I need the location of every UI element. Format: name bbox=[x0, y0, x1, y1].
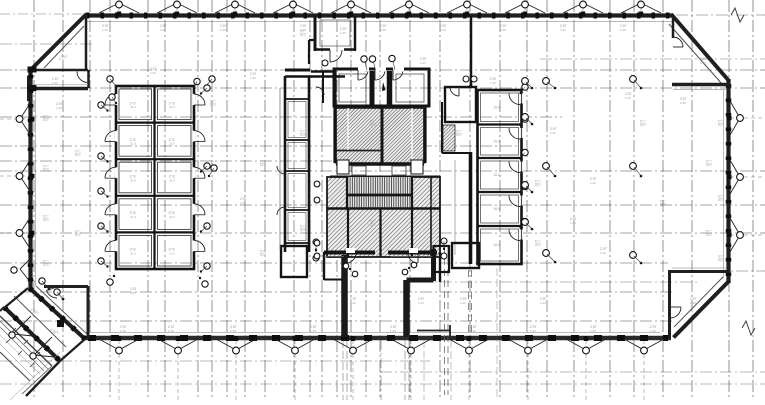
svg-text:2.97: 2.97 bbox=[42, 260, 46, 267]
svg-text:21.0: 21.0 bbox=[130, 178, 136, 182]
svg-text:1.20: 1.20 bbox=[303, 130, 307, 136]
svg-text:1.20: 1.20 bbox=[263, 160, 267, 166]
svg-text:1.20: 1.20 bbox=[373, 220, 377, 226]
svg-text:1.20: 1.20 bbox=[538, 180, 542, 186]
svg-text:1.20: 1.20 bbox=[390, 329, 396, 333]
svg-text:2.97: 2.97 bbox=[659, 200, 663, 207]
svg-text:1.20: 1.20 bbox=[530, 329, 536, 333]
svg-text:2.97: 2.97 bbox=[42, 215, 46, 222]
svg-text:2.97: 2.97 bbox=[209, 100, 213, 107]
svg-text:1.20: 1.20 bbox=[213, 100, 217, 106]
svg-text:2.97: 2.97 bbox=[74, 150, 78, 157]
svg-text:1.20: 1.20 bbox=[459, 130, 463, 136]
svg-text:2.97: 2.97 bbox=[717, 120, 721, 127]
svg-text:2.97: 2.97 bbox=[369, 220, 373, 227]
svg-text:1.20: 1.20 bbox=[130, 291, 136, 295]
svg-text:1.20: 1.20 bbox=[300, 28, 306, 32]
svg-text:2.97: 2.97 bbox=[42, 115, 46, 122]
svg-text:1.20: 1.20 bbox=[700, 61, 706, 65]
svg-text:2.97: 2.97 bbox=[639, 120, 643, 127]
svg-text:21.0: 21.0 bbox=[130, 142, 136, 146]
svg-text:1.20: 1.20 bbox=[263, 250, 267, 256]
svg-text:21.0: 21.0 bbox=[169, 178, 175, 182]
svg-text:1.20: 1.20 bbox=[150, 71, 156, 75]
svg-text:2.97: 2.97 bbox=[369, 120, 373, 127]
svg-text:1.20: 1.20 bbox=[590, 181, 596, 185]
svg-text:1.20: 1.20 bbox=[46, 215, 50, 221]
svg-text:21.0: 21.0 bbox=[169, 215, 175, 219]
svg-text:1.20: 1.20 bbox=[120, 329, 126, 333]
svg-text:1.20: 1.20 bbox=[540, 301, 546, 305]
svg-text:1.20: 1.20 bbox=[46, 260, 50, 266]
svg-text:1.20: 1.20 bbox=[380, 28, 386, 32]
svg-text:1.20: 1.20 bbox=[168, 329, 174, 333]
svg-text:1.20: 1.20 bbox=[373, 120, 377, 126]
svg-text:21.0: 21.0 bbox=[130, 215, 136, 219]
svg-text:2.97: 2.97 bbox=[259, 160, 263, 167]
svg-text:1.20: 1.20 bbox=[538, 240, 542, 246]
svg-text:1.20: 1.20 bbox=[570, 221, 576, 225]
svg-text:1.20: 1.20 bbox=[625, 96, 631, 100]
svg-text:16.4: 16.4 bbox=[494, 105, 500, 109]
svg-text:1.20: 1.20 bbox=[52, 81, 58, 85]
svg-text:21.0: 21.0 bbox=[169, 105, 175, 109]
svg-text:1.20: 1.20 bbox=[490, 81, 496, 85]
svg-text:1.20: 1.20 bbox=[418, 301, 424, 305]
svg-text:1.20: 1.20 bbox=[590, 329, 596, 333]
svg-text:16.4: 16.4 bbox=[494, 139, 500, 143]
svg-text:2.97: 2.97 bbox=[42, 165, 46, 172]
svg-text:1.20: 1.20 bbox=[78, 150, 82, 156]
svg-text:1.20: 1.20 bbox=[46, 115, 50, 121]
svg-text:21.0: 21.0 bbox=[130, 105, 136, 109]
svg-text:2.97: 2.97 bbox=[705, 230, 709, 237]
svg-text:1.20: 1.20 bbox=[721, 120, 725, 126]
svg-text:1.20: 1.20 bbox=[433, 200, 437, 206]
svg-text:2.97: 2.97 bbox=[455, 130, 459, 137]
svg-text:1.20: 1.20 bbox=[78, 230, 82, 236]
svg-text:16.4: 16.4 bbox=[494, 207, 500, 211]
svg-text:1.20: 1.20 bbox=[550, 131, 556, 135]
svg-text:1.20: 1.20 bbox=[560, 28, 566, 32]
svg-text:1.20: 1.20 bbox=[600, 251, 606, 255]
svg-text:1.20: 1.20 bbox=[240, 201, 246, 205]
svg-text:1.20: 1.20 bbox=[709, 230, 713, 236]
svg-text:1.20: 1.20 bbox=[690, 301, 696, 305]
svg-text:21.0: 21.0 bbox=[169, 142, 175, 146]
svg-text:1.20: 1.20 bbox=[56, 106, 62, 110]
svg-text:1.20: 1.20 bbox=[500, 28, 506, 32]
svg-text:1.20: 1.20 bbox=[460, 301, 466, 305]
svg-text:2.97: 2.97 bbox=[259, 250, 263, 257]
svg-text:1.20: 1.20 bbox=[440, 28, 446, 32]
svg-text:1.20: 1.20 bbox=[340, 31, 346, 35]
svg-text:21.0: 21.0 bbox=[130, 252, 136, 256]
svg-text:2.97: 2.97 bbox=[429, 200, 433, 207]
svg-text:1.20: 1.20 bbox=[220, 28, 226, 32]
svg-text:1.20: 1.20 bbox=[643, 120, 647, 126]
svg-text:1.20: 1.20 bbox=[310, 329, 316, 333]
svg-text:1.20: 1.20 bbox=[620, 28, 626, 32]
svg-text:1.20: 1.20 bbox=[160, 28, 166, 32]
svg-text:2.97: 2.97 bbox=[74, 230, 78, 237]
svg-text:1.20: 1.20 bbox=[650, 329, 656, 333]
svg-text:1.20: 1.20 bbox=[663, 200, 667, 206]
svg-text:1.20: 1.20 bbox=[709, 160, 713, 166]
svg-text:1.20: 1.20 bbox=[680, 101, 686, 105]
svg-text:1.20: 1.20 bbox=[230, 329, 236, 333]
svg-text:1.20: 1.20 bbox=[46, 165, 50, 171]
svg-text:1.20: 1.20 bbox=[420, 61, 426, 65]
svg-text:16.4: 16.4 bbox=[494, 173, 500, 177]
svg-text:2.97: 2.97 bbox=[717, 255, 721, 262]
svg-text:1.20: 1.20 bbox=[721, 195, 725, 201]
svg-text:1.20: 1.20 bbox=[350, 301, 356, 305]
svg-text:1.20: 1.20 bbox=[102, 28, 108, 32]
svg-text:2.97: 2.97 bbox=[534, 180, 538, 187]
svg-text:1.20: 1.20 bbox=[721, 255, 725, 261]
svg-text:1.20: 1.20 bbox=[303, 225, 307, 231]
svg-text:21.0: 21.0 bbox=[169, 252, 175, 256]
svg-text:1.20: 1.20 bbox=[470, 329, 476, 333]
svg-text:2.97: 2.97 bbox=[717, 195, 721, 202]
svg-text:2.97: 2.97 bbox=[299, 130, 303, 137]
svg-text:16.4: 16.4 bbox=[494, 243, 500, 247]
svg-text:2.97: 2.97 bbox=[705, 160, 709, 167]
svg-text:2.97: 2.97 bbox=[534, 240, 538, 247]
svg-text:2.97: 2.97 bbox=[299, 225, 303, 232]
svg-text:1.20: 1.20 bbox=[250, 76, 256, 80]
